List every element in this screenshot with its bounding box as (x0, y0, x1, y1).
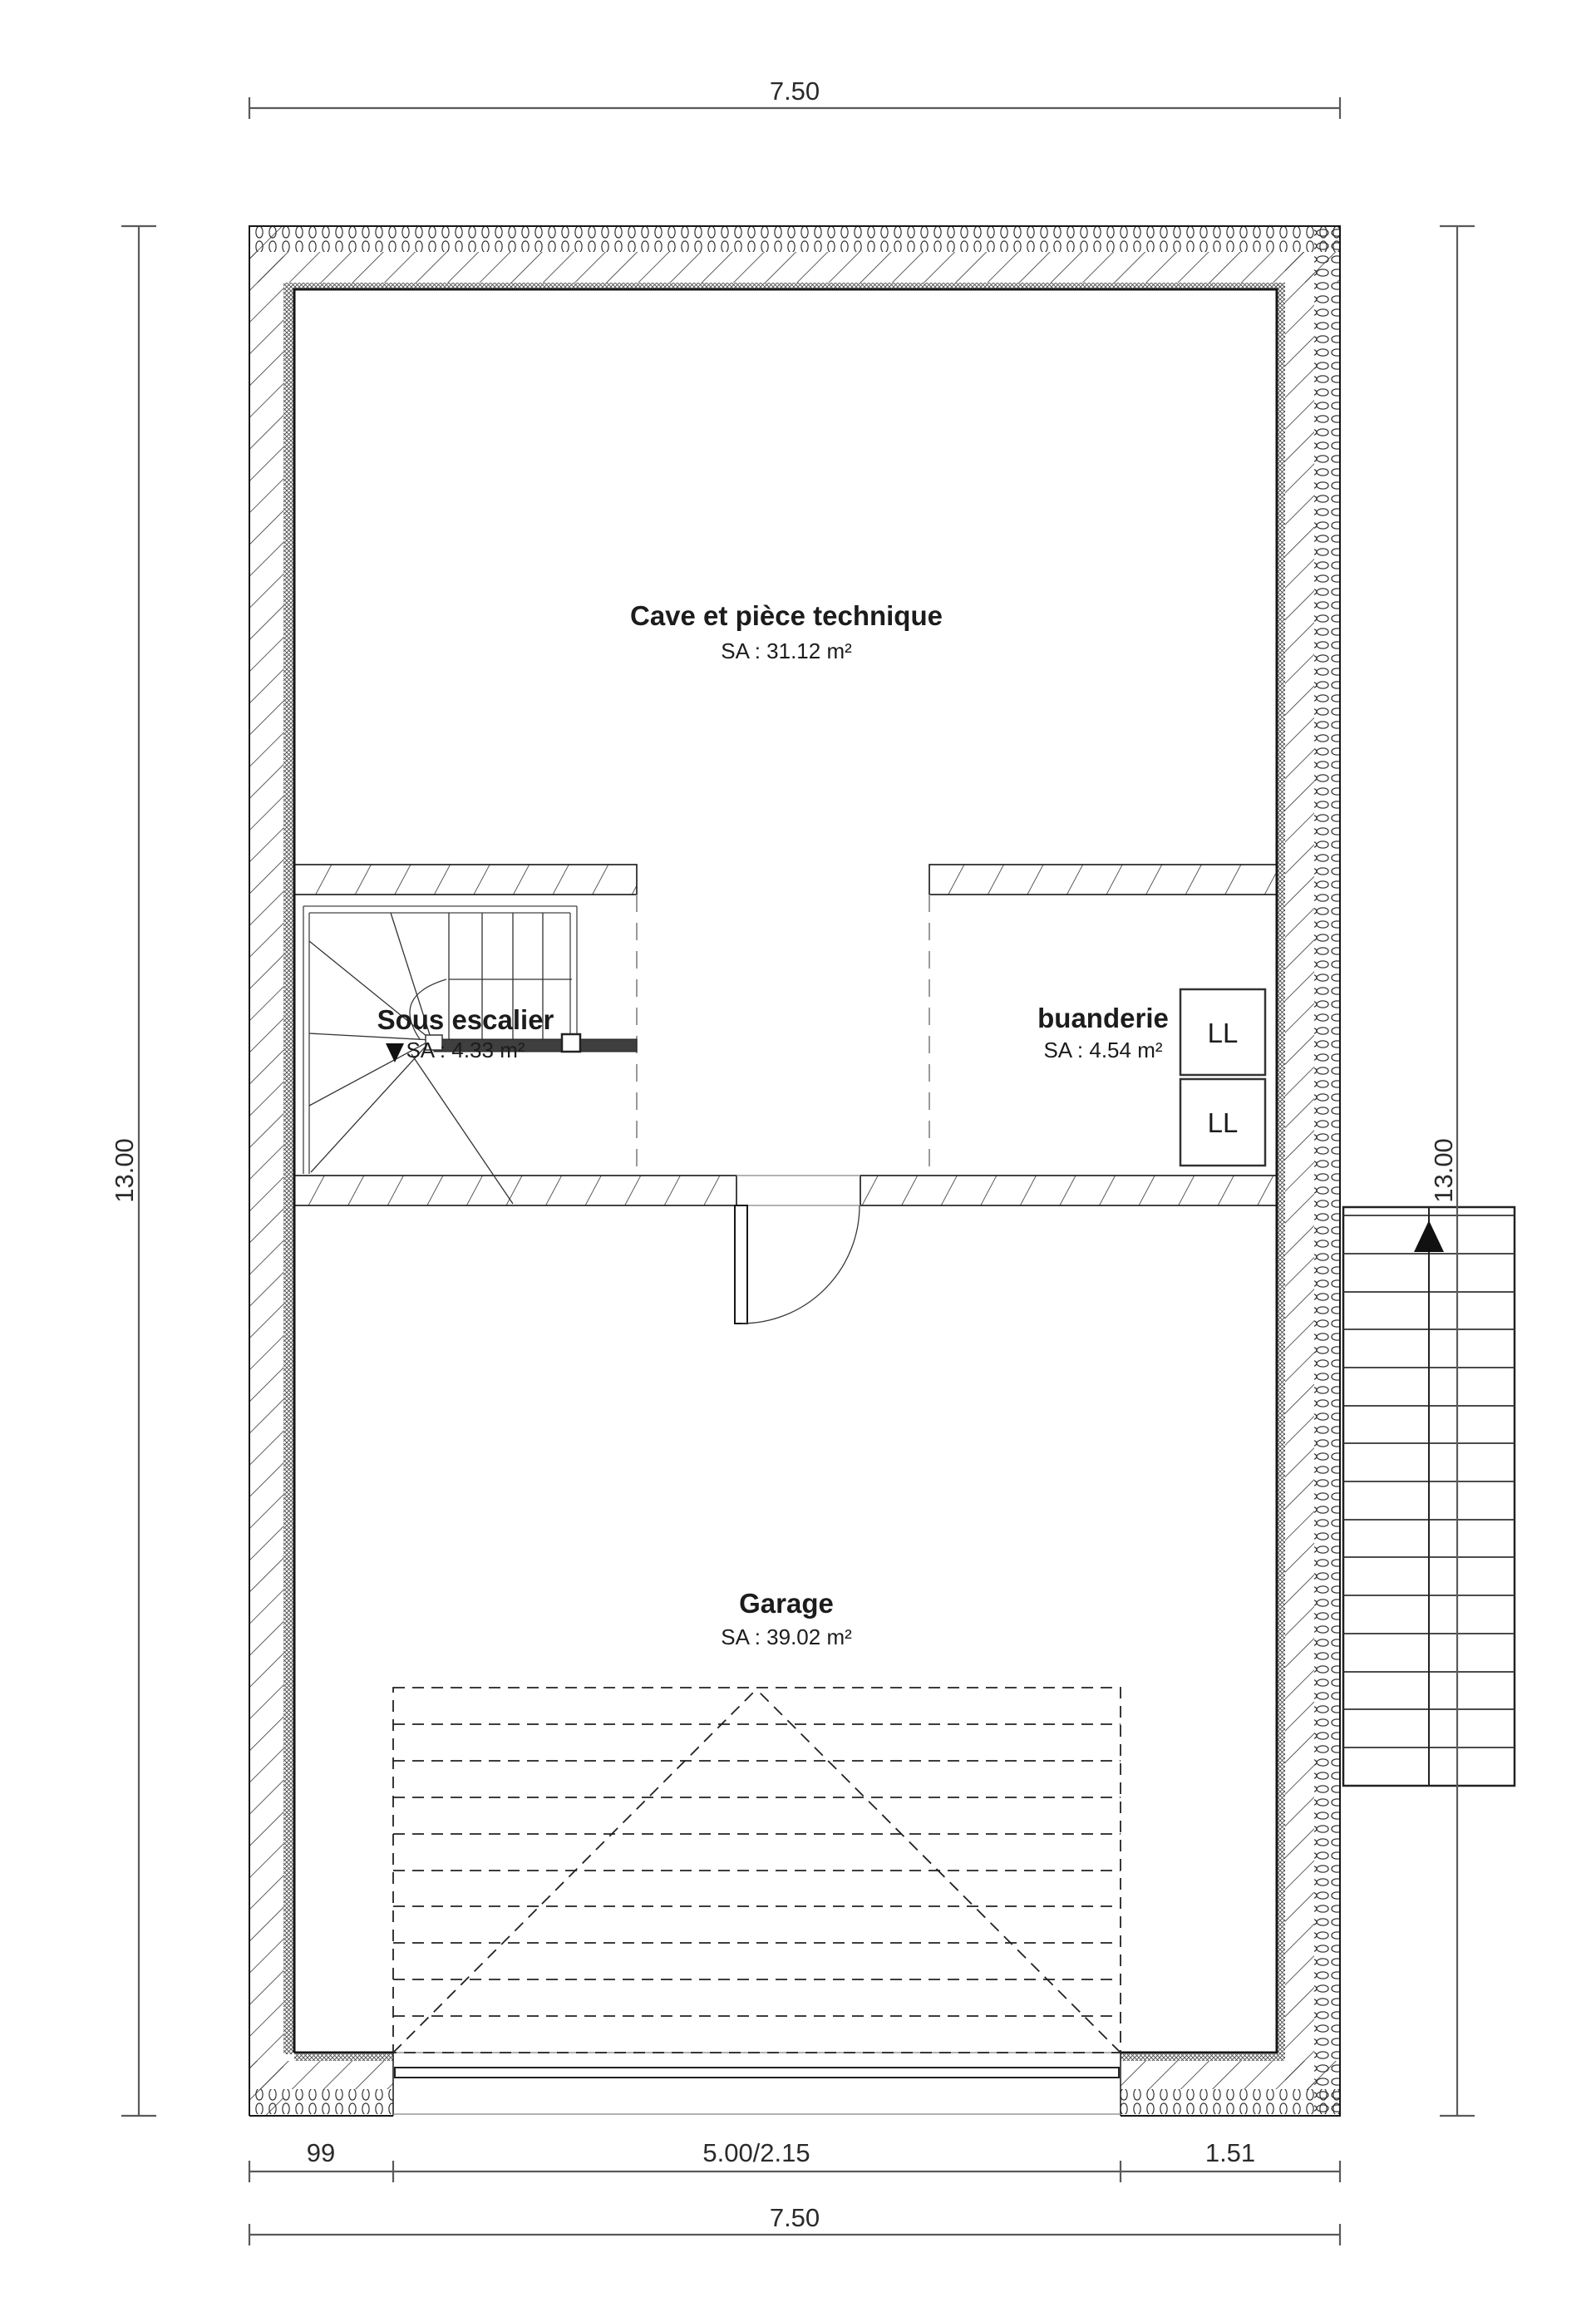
partition-garage-left (294, 1176, 736, 1205)
garage-door-slats (393, 1724, 1121, 2016)
door-leaf (735, 1205, 747, 1324)
door-swing-arc (741, 1205, 860, 1324)
dim-left-label: 13.00 (110, 1138, 139, 1203)
washer-label-1: LL (1208, 1018, 1239, 1048)
garage-door (393, 1688, 1121, 2078)
outer-wall-outline (249, 226, 1340, 2116)
wall-bottom-right-concrete (1121, 2061, 1340, 2089)
floor-plan-svg: LL LL (0, 0, 1596, 2307)
buanderie-area: SA : 4.54 m² (1043, 1038, 1162, 1062)
partition-cave-right (929, 865, 1277, 895)
cave-area: SA : 31.12 m² (721, 638, 852, 663)
exterior-walls (249, 226, 1340, 2116)
wall-bottom-right-insulation (1121, 2089, 1340, 2114)
buanderie-label: buanderie (1037, 1003, 1169, 1033)
dim-bottom-right-label: 1.51 (1205, 2138, 1255, 2167)
room-labels: Cave et pièce technique SA : 31.12 m² So… (377, 600, 1169, 1649)
inner-wall-outline (294, 289, 1277, 2053)
dim-left: 13.00 (110, 226, 156, 2116)
wall-bottom-left-strip (294, 2054, 393, 2061)
wall-left-concrete (249, 227, 283, 2115)
dim-top: 7.50 (249, 76, 1340, 119)
wall-left-insulation-strip (283, 283, 294, 2054)
wall-right-exterior-insulation (1314, 227, 1340, 2115)
wall-top-exterior-insulation (249, 227, 1340, 252)
dim-bottom-total-label: 7.50 (770, 2203, 820, 2232)
dim-right: 13.00 (1429, 226, 1475, 2116)
stair-down-arrow-icon (386, 1043, 404, 1062)
stair-newel-right (562, 1034, 580, 1052)
garage-door-panel (395, 2068, 1119, 2078)
dim-bottom-middle-label: 5.00/2.15 (702, 2138, 810, 2167)
floor-plan-page: LL LL (0, 0, 1596, 2307)
partition-garage-right (860, 1176, 1277, 1205)
interior-door (735, 1176, 860, 1324)
washer-label-2: LL (1208, 1107, 1239, 1138)
wall-bottom-left-concrete (249, 2061, 393, 2089)
dim-bottom-left-label: 99 (307, 2138, 335, 2167)
sous-escalier-area: SA : 4.33 m² (406, 1038, 525, 1062)
dimensions: 7.50 13.00 13.00 99 5.00/2.15 1.51 (110, 76, 1475, 2245)
cave-label: Cave et pièce technique (630, 600, 943, 631)
dim-bottom-detail: 99 5.00/2.15 1.51 (249, 2138, 1340, 2182)
wall-top-concrete (249, 252, 1340, 283)
exterior-stair (1343, 1207, 1515, 1786)
garage-label: Garage (739, 1588, 834, 1619)
sous-escalier-label: Sous escalier (377, 1004, 554, 1035)
dim-bottom-total: 7.50 (249, 2203, 1340, 2245)
wall-bottom-left-insulation (249, 2089, 393, 2114)
wall-bottom-right-strip (1121, 2054, 1277, 2061)
wall-right-concrete (1285, 252, 1314, 2090)
washer-boxes: LL LL (1180, 989, 1265, 1166)
partition-cave-left (294, 865, 637, 895)
garage-area: SA : 39.02 m² (721, 1624, 852, 1649)
dim-right-label: 13.00 (1429, 1138, 1458, 1203)
dim-top-label: 7.50 (770, 76, 820, 106)
